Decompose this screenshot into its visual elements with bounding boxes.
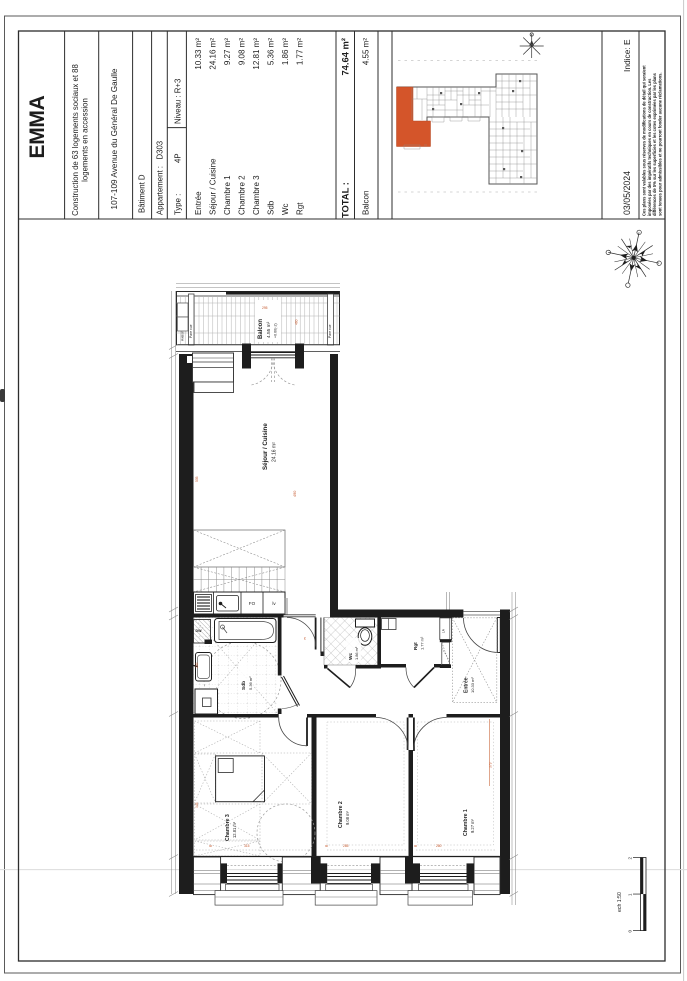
svg-text:Chambre 2: Chambre 2 [238, 175, 247, 215]
svg-text:12.81 m²: 12.81 m² [232, 821, 237, 838]
svg-text:Construction de 63 logements s: Construction de 63 logements sociaux et … [71, 64, 80, 216]
svg-text:Bâtiment D: Bâtiment D [138, 174, 147, 213]
svg-text:90: 90 [325, 844, 329, 848]
svg-text:TOTAL :: TOTAL : [340, 182, 351, 218]
svg-text:460: 460 [295, 319, 299, 325]
svg-text:Chambre 3: Chambre 3 [225, 814, 231, 841]
svg-text:logements en accession: logements en accession [81, 98, 90, 182]
svg-text:DW: DW [196, 629, 203, 633]
svg-text:24.16 m²: 24.16 m² [272, 442, 278, 462]
svg-text:1.86 m²: 1.86 m² [281, 38, 290, 65]
svg-text:Séjour / Cuisine: Séjour / Cuisine [209, 158, 218, 215]
svg-text:10.33 m²: 10.33 m² [470, 677, 475, 693]
svg-text:Ces plans sont valables sous r: Ces plans sont valables sous réserves de… [642, 65, 647, 216]
svg-text:12.81 m²: 12.81 m² [252, 38, 261, 70]
svg-text:Chambre 2: Chambre 2 [338, 801, 344, 828]
svg-text:345: 345 [195, 802, 199, 808]
svg-text:9.08 m²: 9.08 m² [345, 810, 350, 825]
svg-text:490: 490 [293, 491, 297, 497]
svg-text:75: 75 [303, 636, 307, 640]
svg-text:Type :: Type : [174, 194, 183, 215]
svg-text:Wc: Wc [281, 203, 290, 215]
svg-text:différences de 5% sur les supe: différences de 5% sur les superficies et… [652, 72, 657, 216]
svg-text:295: 295 [262, 306, 268, 310]
svg-text:Rgt: Rgt [413, 642, 418, 650]
svg-text:ech 1:50: ech 1:50 [617, 892, 623, 912]
svg-text:FO: FO [249, 601, 256, 606]
svg-text:EMMA: EMMA [26, 95, 49, 158]
svg-text:Chambre 3: Chambre 3 [252, 175, 261, 215]
svg-text:Balcon: Balcon [258, 319, 264, 339]
svg-text:Entrée: Entrée [464, 677, 470, 693]
svg-text:+0.60(-2): +0.60(-2) [274, 323, 278, 338]
svg-text:Sdb: Sdb [267, 200, 276, 215]
svg-text:9.08 m²: 9.08 m² [238, 38, 247, 65]
svg-text:1.86 m²: 1.86 m² [354, 646, 359, 660]
svg-text:90: 90 [414, 844, 418, 848]
svg-text:10.33 m²: 10.33 m² [194, 38, 203, 70]
svg-text:Pare vue: Pare vue [328, 324, 332, 338]
svg-text:Appartement : D303: Appartement : D303 [156, 141, 165, 215]
svg-text:Niveau : R+3: Niveau : R+3 [174, 79, 183, 124]
svg-text:24.16 m²: 24.16 m² [209, 38, 218, 70]
svg-text:5.36 m²: 5.36 m² [248, 676, 253, 690]
svg-text:Rgt: Rgt [296, 202, 305, 215]
svg-text:1.77 m²: 1.77 m² [296, 38, 305, 65]
svg-text:Pare vue: Pare vue [189, 324, 193, 338]
svg-text:4P: 4P [174, 153, 183, 163]
svg-text:sont tenues pour admissibles e: sont tenues pour admissibles et ne pourr… [657, 72, 662, 216]
svg-text:Chambre 1: Chambre 1 [223, 175, 232, 215]
svg-text:Chambre 1: Chambre 1 [463, 809, 469, 836]
svg-text:03/05/2024: 03/05/2024 [622, 171, 632, 215]
svg-text:107-109 Avenue du Général De G: 107-109 Avenue du Général De Gaulle [110, 68, 119, 209]
svg-text:90: 90 [209, 844, 213, 848]
svg-text:imposées par des impératifs te: imposées par des impératifs techniques e… [647, 78, 652, 216]
svg-text:Séjour / Cuisine: Séjour / Cuisine [262, 423, 269, 470]
svg-text:253: 253 [195, 662, 199, 668]
svg-text:Sdb: Sdb [241, 681, 247, 690]
svg-text:9.27 m²: 9.27 m² [223, 38, 232, 65]
svg-text:1.77 m²: 1.77 m² [420, 636, 425, 650]
svg-text:5.36 m²: 5.36 m² [267, 38, 276, 65]
svg-text:Entrée: Entrée [194, 191, 203, 215]
svg-text:280: 280 [436, 844, 442, 848]
svg-text:Indice: E: Indice: E [622, 39, 632, 72]
svg-text:9.27 m²: 9.27 m² [470, 818, 475, 833]
svg-text:505: 505 [195, 476, 199, 482]
svg-text:Avaloir: Avaloir [181, 330, 185, 341]
svg-text:Balcon: Balcon [362, 191, 371, 215]
svg-text:74.64 m²: 74.64 m² [340, 38, 351, 76]
svg-text:315: 315 [244, 844, 250, 848]
svg-text:285: 285 [343, 844, 349, 848]
svg-text:4.55 m²: 4.55 m² [266, 321, 272, 338]
svg-text:4.55 m²: 4.55 m² [362, 38, 371, 65]
